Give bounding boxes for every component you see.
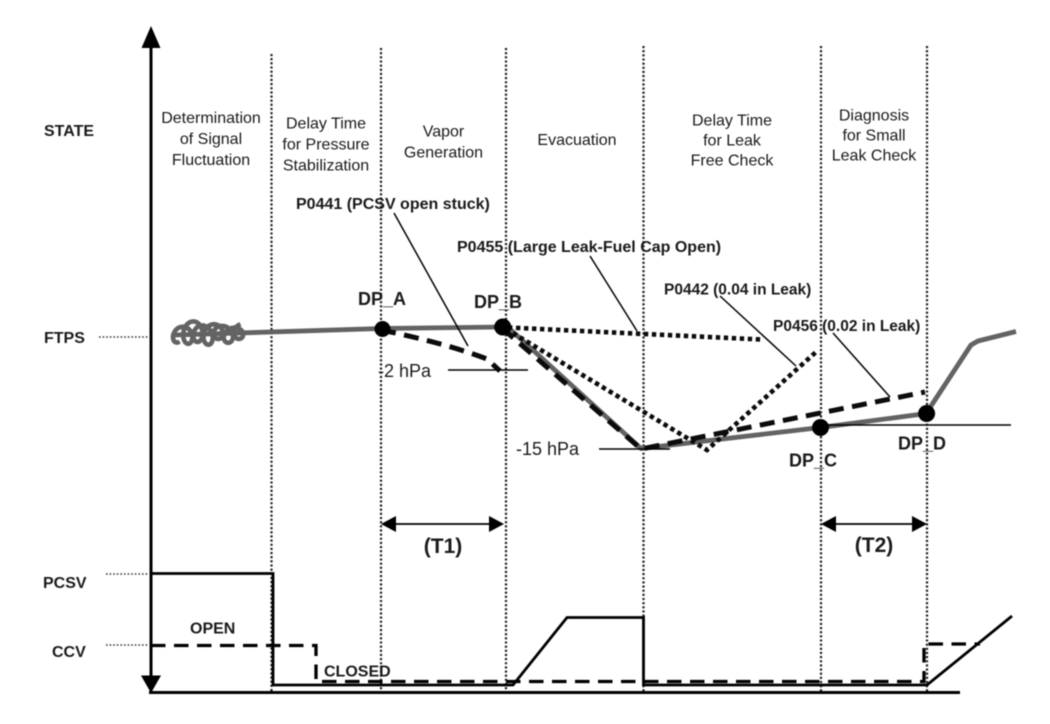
svg-text:Leak Check: Leak Check <box>832 148 917 165</box>
svg-text:for Small: for Small <box>842 128 905 145</box>
svg-text:(T2): (T2) <box>855 534 894 557</box>
svg-text:for Pressure: for Pressure <box>282 137 369 154</box>
svg-text:DP_A: DP_A <box>358 289 406 309</box>
svg-text:Vapor: Vapor <box>423 124 465 141</box>
svg-text:P0455 (Large Leak-Fuel Cap Ope: P0455 (Large Leak-Fuel Cap Open) <box>457 239 721 256</box>
svg-text:PCSV: PCSV <box>43 575 87 592</box>
svg-text:STATE: STATE <box>44 123 94 140</box>
svg-text:(T1): (T1) <box>424 535 463 558</box>
svg-text:Evacuation: Evacuation <box>537 132 616 149</box>
svg-text:FTPS: FTPS <box>44 330 85 347</box>
svg-text:Generation: Generation <box>404 145 483 162</box>
svg-text:P0442 (0.04 in Leak): P0442 (0.04 in Leak) <box>664 282 811 299</box>
svg-text:of Signal: of Signal <box>180 131 242 148</box>
svg-text:Stabilization: Stabilization <box>283 158 369 175</box>
svg-text:DP_B: DP_B <box>474 292 522 312</box>
svg-text:P0441 (PCSV open stuck): P0441 (PCSV open stuck) <box>296 196 490 213</box>
svg-text:for Leak: for Leak <box>703 133 762 150</box>
svg-text:Diagnosis: Diagnosis <box>839 108 909 125</box>
svg-text:CCV: CCV <box>52 644 86 661</box>
svg-text:Determination: Determination <box>161 110 261 127</box>
svg-text:P0456 (0.02 in Leak): P0456 (0.02 in Leak) <box>773 318 920 335</box>
svg-text:-15 hPa: -15 hPa <box>516 439 580 459</box>
svg-text:Free Check: Free Check <box>691 153 775 170</box>
svg-text:Delay Time: Delay Time <box>286 116 366 133</box>
svg-text:-2 hPa: -2 hPa <box>378 361 432 381</box>
svg-text:DP_C: DP_C <box>789 451 837 471</box>
svg-text:OPEN: OPEN <box>190 621 235 638</box>
svg-text:Fluctuation: Fluctuation <box>172 152 250 169</box>
svg-text:CLOSED: CLOSED <box>324 664 391 681</box>
svg-text:DP_D: DP_D <box>898 434 946 454</box>
svg-text:Delay Time: Delay Time <box>692 113 772 130</box>
